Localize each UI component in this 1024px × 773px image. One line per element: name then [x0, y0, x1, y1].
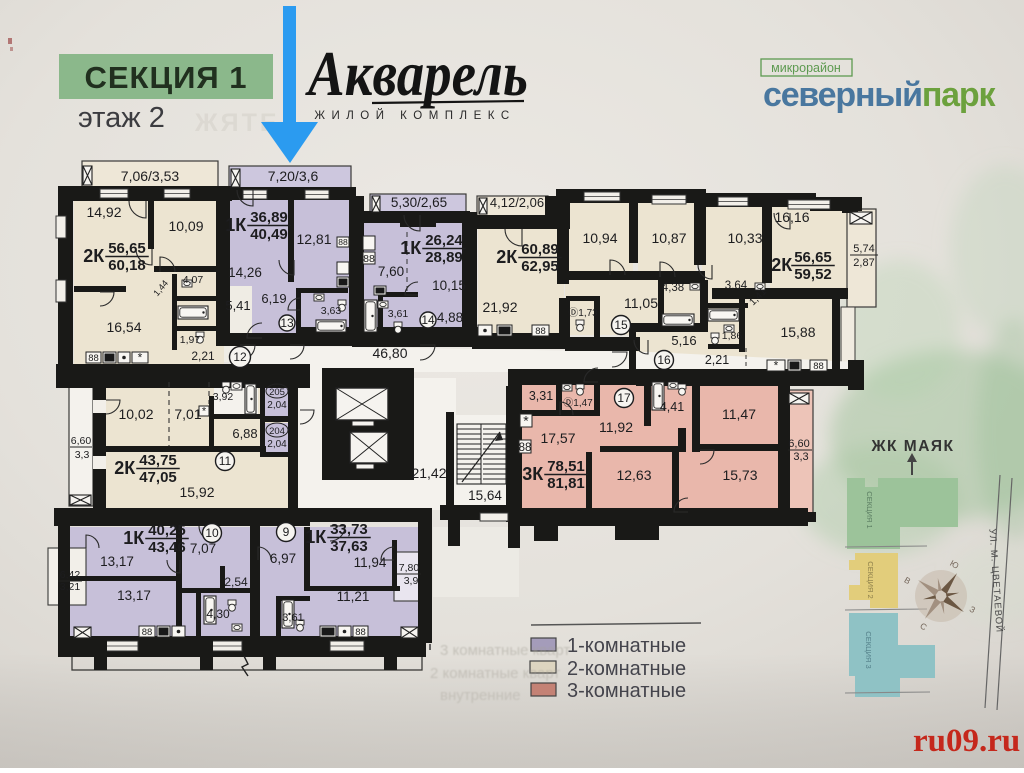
- svg-text:ЖИЛОЙ КОМПЛЕКС: ЖИЛОЙ КОМПЛЕКС: [314, 109, 515, 122]
- svg-text:3,64: 3,64: [725, 280, 748, 292]
- svg-text:88: 88: [363, 253, 375, 265]
- svg-text:28,89: 28,89: [425, 249, 463, 266]
- svg-text:4,30: 4,30: [206, 607, 230, 621]
- svg-text:12: 12: [233, 350, 247, 364]
- svg-text:15: 15: [614, 318, 628, 332]
- svg-text:Акварель: Акварель: [305, 39, 528, 109]
- svg-text:10,15: 10,15: [432, 278, 466, 293]
- svg-text:88: 88: [535, 326, 546, 337]
- svg-text:43,75: 43,75: [139, 452, 177, 469]
- svg-text:4,07: 4,07: [183, 274, 204, 286]
- svg-text:11,94: 11,94: [354, 555, 387, 570]
- svg-text:3 комнатные кварт: 3 комнатные кварт: [440, 642, 570, 659]
- svg-text:26,24: 26,24: [425, 232, 463, 249]
- svg-text:15,88: 15,88: [780, 324, 815, 340]
- svg-text:СЕКЦИЯ 2: СЕКЦИЯ 2: [866, 561, 875, 598]
- svg-text:3-комнатные: 3-комнатные: [567, 680, 686, 702]
- svg-text:*: *: [138, 351, 143, 365]
- svg-text:микрорайон: микрорайон: [771, 61, 841, 75]
- svg-text:10,09: 10,09: [168, 218, 203, 234]
- svg-text:15,73: 15,73: [722, 467, 757, 483]
- svg-text:5,41: 5,41: [225, 298, 250, 313]
- svg-text:10,02: 10,02: [118, 406, 153, 422]
- svg-text:5,74: 5,74: [853, 243, 874, 255]
- svg-text:2 комнатные кварт: 2 комнатные кварт: [430, 665, 560, 682]
- svg-text:2,87: 2,87: [853, 257, 874, 269]
- svg-text:78,51: 78,51: [547, 458, 585, 475]
- svg-text:7,01: 7,01: [174, 406, 201, 422]
- svg-text:3,3: 3,3: [75, 449, 90, 461]
- svg-text:СЕКЦИЯ 1: СЕКЦИЯ 1: [865, 491, 874, 528]
- svg-text:1,97: 1,97: [180, 334, 201, 346]
- svg-text:2К: 2К: [771, 255, 793, 275]
- svg-text:2,04: 2,04: [267, 400, 287, 411]
- svg-text:7,60: 7,60: [378, 264, 404, 279]
- svg-text:13: 13: [280, 316, 294, 330]
- svg-text:этаж 2: этаж 2: [78, 102, 165, 134]
- svg-text:17,57: 17,57: [540, 430, 575, 446]
- svg-text:10,94: 10,94: [582, 230, 617, 246]
- svg-text:17: 17: [617, 391, 631, 405]
- svg-text:6,19: 6,19: [261, 291, 286, 306]
- svg-text:3,3: 3,3: [793, 451, 808, 463]
- svg-text:2,04: 2,04: [267, 439, 287, 450]
- svg-text:81,81: 81,81: [547, 475, 585, 492]
- svg-text:10,87: 10,87: [651, 230, 686, 246]
- svg-text:1К: 1К: [225, 215, 247, 235]
- svg-text:Ⓓ1,47: Ⓓ1,47: [563, 397, 593, 409]
- svg-text:2К: 2К: [114, 458, 136, 478]
- svg-text:СЕКЦИЯ 1: СЕКЦИЯ 1: [84, 60, 247, 95]
- svg-text:62,95: 62,95: [521, 258, 559, 275]
- svg-text:10: 10: [205, 526, 219, 540]
- svg-text:43,46: 43,46: [148, 539, 186, 556]
- svg-text:15,92: 15,92: [179, 484, 214, 500]
- svg-text:12,81: 12,81: [296, 231, 331, 247]
- svg-text:1-комнатные: 1-комнатные: [567, 635, 686, 657]
- svg-text:4,41: 4,41: [660, 400, 684, 414]
- svg-text:6,60: 6,60: [788, 438, 809, 450]
- svg-text:1,86: 1,86: [722, 330, 743, 342]
- svg-text:60,89: 60,89: [521, 241, 559, 258]
- svg-text:5,16: 5,16: [671, 333, 696, 348]
- svg-text:14,26: 14,26: [228, 265, 262, 280]
- svg-text:21,92: 21,92: [482, 299, 517, 315]
- svg-text:6,97: 6,97: [270, 551, 296, 566]
- svg-text:15,64: 15,64: [468, 488, 502, 503]
- svg-text:*: *: [523, 413, 529, 429]
- svg-text:88: 88: [813, 361, 824, 372]
- svg-text:3,9: 3,9: [404, 575, 419, 587]
- svg-text:4,12/2,06: 4,12/2,06: [490, 195, 544, 210]
- svg-text:14: 14: [421, 313, 435, 327]
- svg-text:1К: 1К: [123, 528, 145, 548]
- svg-text:Ⓓ1,73: Ⓓ1,73: [568, 307, 598, 319]
- svg-text:47,05: 47,05: [139, 469, 177, 486]
- svg-text:3,61: 3,61: [282, 612, 303, 624]
- svg-text:2,21: 2,21: [705, 353, 729, 367]
- svg-text:6,42: 6,42: [60, 569, 81, 581]
- svg-text:88: 88: [519, 442, 532, 454]
- svg-text:3,21: 3,21: [60, 581, 81, 593]
- svg-text:*: *: [774, 359, 779, 373]
- svg-text:ЖК МАЯК: ЖК МАЯК: [871, 438, 955, 455]
- svg-text:11,47: 11,47: [722, 406, 756, 422]
- svg-text:*: *: [202, 406, 207, 418]
- svg-text:3,61: 3,61: [388, 308, 409, 320]
- svg-text:3,31: 3,31: [529, 389, 553, 403]
- svg-text:46,80: 46,80: [372, 345, 407, 361]
- svg-text:56,65: 56,65: [108, 240, 146, 257]
- svg-text:7,20/3,6: 7,20/3,6: [268, 168, 319, 184]
- svg-text:северныйпарк: северныйпарк: [763, 76, 996, 114]
- svg-text:2,21: 2,21: [191, 349, 215, 363]
- svg-text:88: 88: [142, 627, 153, 638]
- svg-text:88: 88: [88, 353, 99, 364]
- svg-text:5,30/2,65: 5,30/2,65: [391, 195, 447, 210]
- svg-text:13,17: 13,17: [117, 588, 151, 603]
- svg-text:40,25: 40,25: [148, 522, 186, 539]
- svg-text:11: 11: [219, 454, 232, 468]
- svg-text:2-комнатные: 2-комнатные: [567, 658, 686, 680]
- svg-text:16,54: 16,54: [106, 319, 141, 335]
- svg-text:2К: 2К: [83, 246, 105, 266]
- svg-text:60,18: 60,18: [108, 257, 146, 274]
- svg-text:ru09.ru: ru09.ru: [913, 723, 1020, 759]
- svg-text:16,16: 16,16: [774, 209, 809, 225]
- svg-text:10,33: 10,33: [727, 230, 762, 246]
- svg-text:16: 16: [657, 353, 671, 367]
- svg-text:3К: 3К: [522, 464, 544, 484]
- svg-text:88: 88: [338, 237, 348, 247]
- svg-text:56,65: 56,65: [794, 249, 832, 266]
- svg-text:88: 88: [355, 627, 366, 638]
- svg-text:33,73: 33,73: [330, 521, 368, 538]
- svg-text:205: 205: [269, 387, 285, 398]
- svg-text:7,07: 7,07: [190, 541, 216, 556]
- svg-text:7,80: 7,80: [399, 562, 420, 574]
- svg-text:2К: 2К: [496, 247, 518, 267]
- svg-text:4,38: 4,38: [662, 282, 684, 294]
- svg-text:11,21: 11,21: [337, 589, 370, 604]
- svg-text:4,88: 4,88: [437, 310, 463, 325]
- svg-text:1К: 1К: [400, 238, 422, 258]
- svg-text:внутренние: внутренние: [440, 687, 521, 704]
- svg-text:204: 204: [269, 426, 285, 437]
- svg-text:9: 9: [283, 525, 290, 539]
- svg-text:1К: 1К: [305, 527, 327, 547]
- svg-text:11,05: 11,05: [624, 295, 658, 311]
- svg-text:3,63: 3,63: [321, 305, 342, 317]
- svg-text:21,42: 21,42: [411, 465, 446, 481]
- svg-text:11,92: 11,92: [599, 419, 633, 435]
- svg-text:13,17: 13,17: [100, 554, 134, 569]
- svg-text:7,06/3,53: 7,06/3,53: [121, 168, 180, 184]
- svg-text:2,54: 2,54: [224, 575, 248, 589]
- svg-text:36,89: 36,89: [250, 209, 288, 226]
- svg-text:3,92: 3,92: [213, 391, 234, 403]
- svg-text:12,63: 12,63: [616, 467, 651, 483]
- svg-text:14,92: 14,92: [86, 204, 121, 220]
- svg-text:6,60: 6,60: [71, 435, 92, 447]
- svg-text:37,63: 37,63: [330, 538, 368, 555]
- svg-text:59,52: 59,52: [794, 266, 832, 283]
- svg-text:СЕКЦИЯ 3: СЕКЦИЯ 3: [864, 631, 873, 668]
- svg-text:40,49: 40,49: [250, 226, 288, 243]
- svg-text:6,88: 6,88: [232, 426, 257, 441]
